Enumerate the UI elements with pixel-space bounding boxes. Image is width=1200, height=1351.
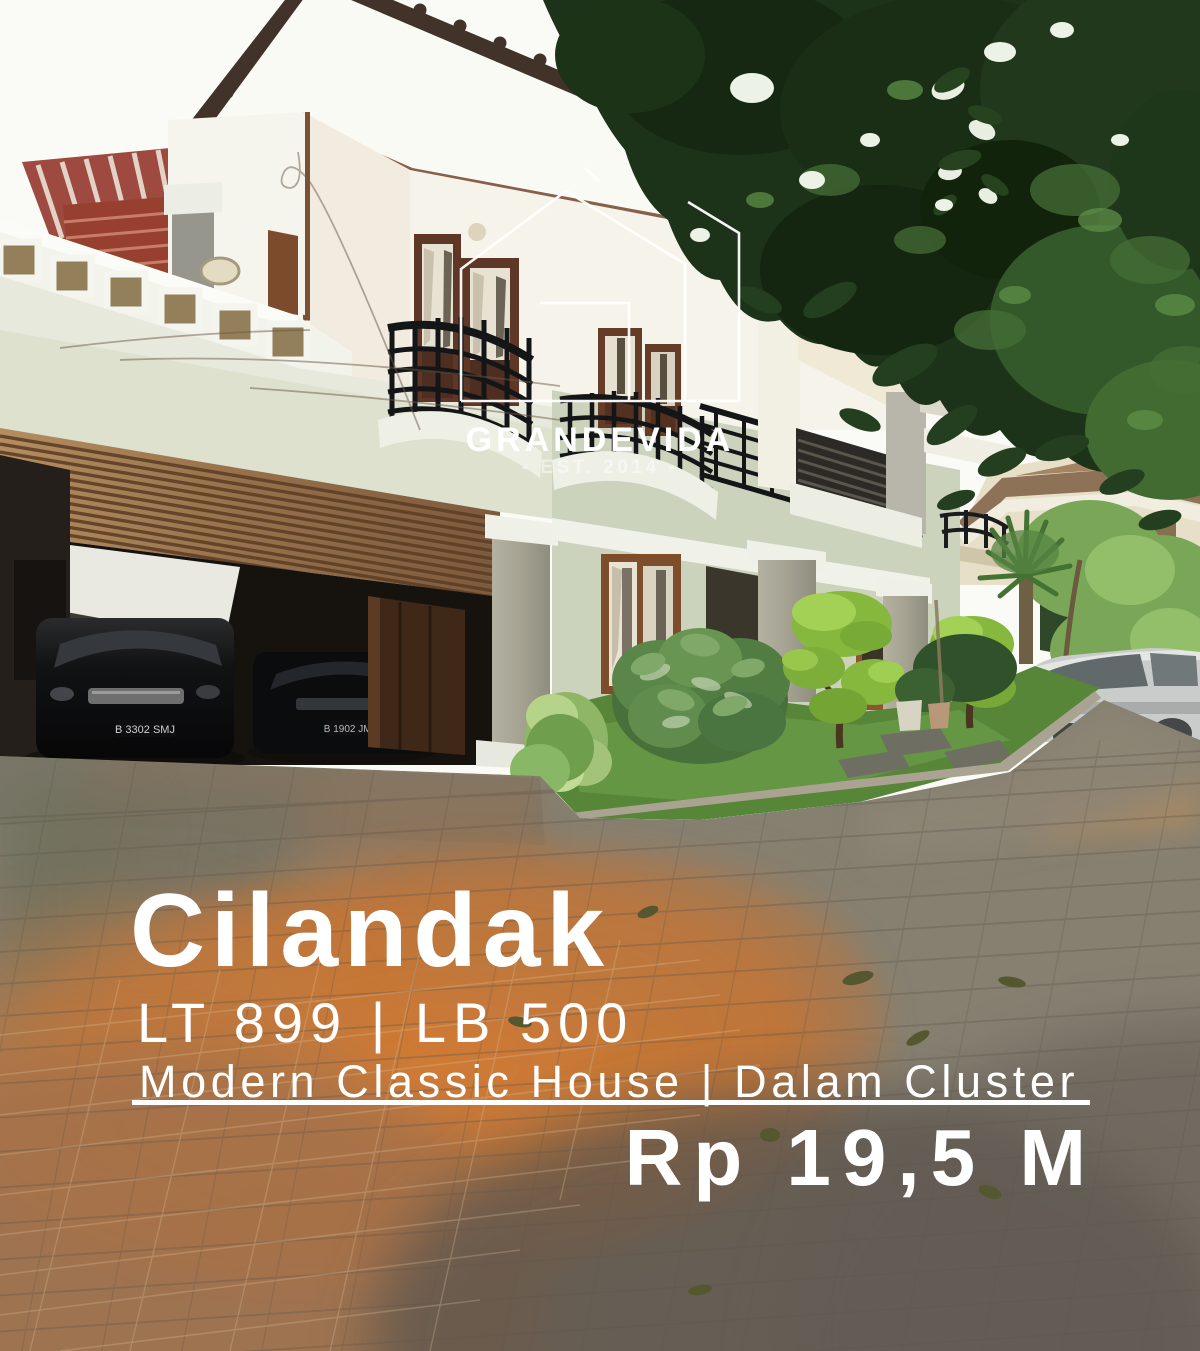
svg-text:Modern Classic House | Dalam C: Modern Classic House | Dalam Cluster bbox=[139, 1056, 1079, 1107]
svg-text:- EST. 2014 -: - EST. 2014 - bbox=[522, 457, 678, 478]
svg-text:B 3302 SMJ: B 3302 SMJ bbox=[115, 724, 175, 736]
svg-text:Cilandak: Cilandak bbox=[130, 873, 610, 989]
svg-text:GRANDEVIDA: GRANDEVIDA bbox=[466, 421, 735, 459]
svg-text:Rp 19,5 M: Rp 19,5 M bbox=[625, 1113, 1097, 1202]
svg-text:LT 899 | LB 500: LT 899 | LB 500 bbox=[137, 991, 634, 1054]
